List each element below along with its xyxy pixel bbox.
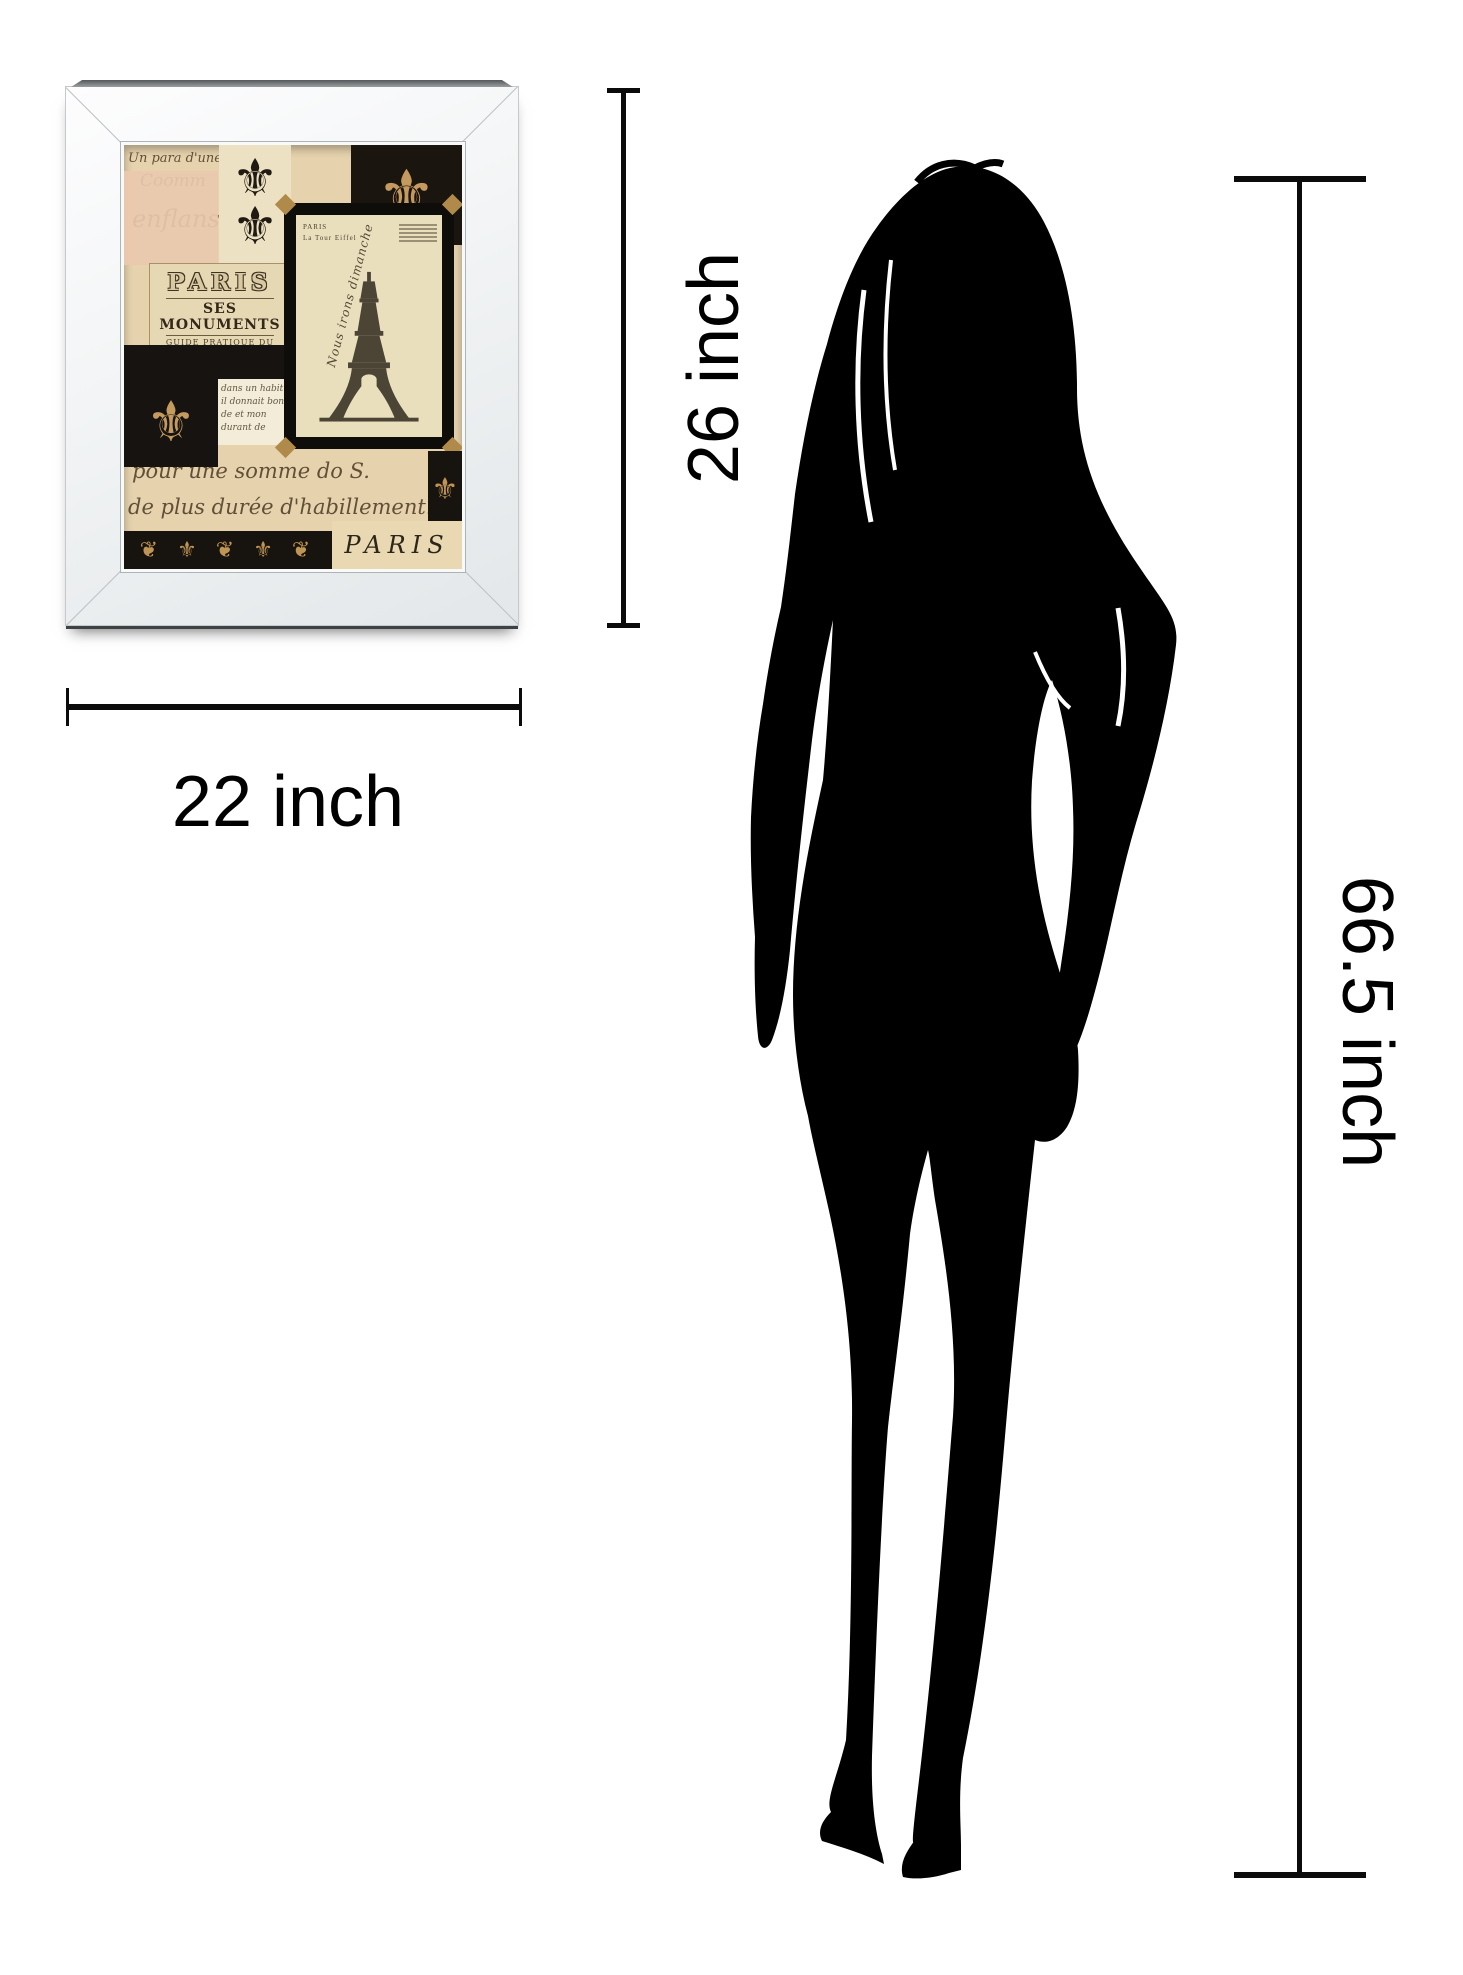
frame-miter-line	[66, 567, 125, 626]
frame-top-edge	[71, 80, 513, 87]
frame-miter-line	[65, 87, 124, 146]
script-fragment: pour une somme do S.	[132, 459, 370, 483]
postcard-header: PARIS	[303, 223, 327, 231]
script-fragment: de plus durée d'habillement.	[128, 495, 432, 519]
script-fragment: de et mon	[221, 409, 283, 422]
person-height-label: 66.5 inch	[1331, 876, 1403, 1168]
postcard-paragraph	[399, 222, 437, 244]
frame-width-label: 22 inch	[172, 766, 404, 838]
damask-pattern-block: ⚜	[428, 451, 462, 529]
damask-pattern-block: ⚜	[124, 379, 218, 467]
black-band	[124, 345, 286, 379]
postcard-mat: PARIS La Tour Eiffel Nous irons dimanche	[284, 203, 454, 449]
artwork-collage: Un para d'une au Coomm enflans ⚜ ⚜ ⚜ PAR…	[124, 145, 462, 569]
script-fragment: il donnait bon	[221, 396, 283, 409]
woman-silhouette-body	[751, 166, 1177, 1878]
frame-height-top-tick	[607, 88, 640, 93]
frame-miter-line	[459, 86, 518, 145]
fleur-de-lis-icon: ⚜	[432, 476, 459, 504]
white-script-patch: dans un habit il donnait bon de et mon d…	[218, 379, 286, 445]
sign-title: PARIS	[150, 269, 290, 296]
frame-width-dimension-line	[67, 704, 521, 710]
postcard-subheader: La Tour Eiffel	[303, 234, 357, 242]
sign-divider	[166, 335, 274, 336]
person-height-bottom-tick	[1234, 1872, 1366, 1878]
frame-width-left-tick	[66, 688, 69, 726]
ornament-row: ❦ ⚜ ❦ ⚜ ❦	[140, 538, 317, 563]
postcard-caption: PARIS La Tour Eiffel	[303, 222, 357, 243]
fleur-de-lis-icon: ⚜	[146, 397, 196, 449]
damask-border-strip: ❦ ⚜ ❦ ⚜ ❦	[124, 531, 332, 569]
script-fragment: dans un habit	[221, 383, 283, 396]
eiffel-tower-illustration	[310, 270, 428, 432]
frame-miter-line	[460, 566, 519, 625]
mirror-frame: Un para d'une au Coomm enflans ⚜ ⚜ ⚜ PAR…	[65, 86, 519, 626]
script-fragment: durant de	[221, 422, 283, 435]
woman-silhouette	[565, 140, 1205, 1885]
sign-divider	[166, 298, 274, 299]
person-height-dimension-line	[1297, 176, 1302, 1878]
pink-paper-patch	[124, 171, 218, 265]
person-height-top-tick	[1234, 176, 1366, 182]
sign-subtitle: SES MONUMENTS	[150, 301, 290, 333]
fleur-de-lis-icon: ⚜	[232, 204, 279, 252]
paris-label: PARIS	[332, 521, 462, 569]
product-dimension-image: Un para d'une au Coomm enflans ⚜ ⚜ ⚜ PAR…	[0, 0, 1463, 1975]
eiffel-postcard: PARIS La Tour Eiffel Nous irons dimanche	[296, 215, 442, 437]
frame-width-right-tick	[519, 688, 522, 726]
